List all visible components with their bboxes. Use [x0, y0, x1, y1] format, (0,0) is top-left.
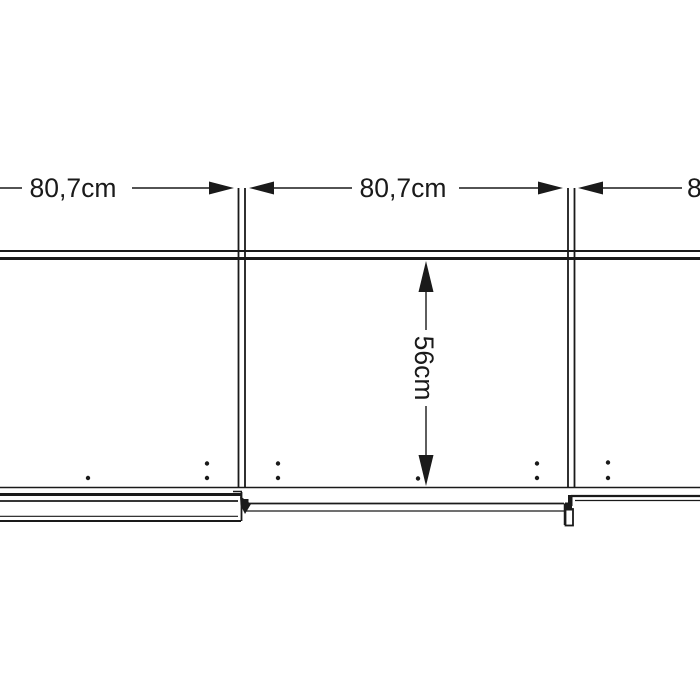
dimension-label-right-clipped: 80,7cm [687, 173, 700, 203]
width-dimension-middle: 80,7cm [249, 173, 563, 203]
sliding-door-middle [244, 499, 573, 526]
arrow-right-icon [209, 182, 234, 195]
drill-hole-dot [86, 476, 90, 480]
depth-dimension: 56cm [409, 261, 439, 486]
divider-panel-left [239, 188, 246, 487]
drill-hole-dot [205, 476, 209, 480]
drill-hole-dot [606, 476, 610, 480]
width-dimension-left: 80,7cm [0, 173, 234, 203]
drill-hole-dot [606, 460, 610, 464]
arrow-right-icon [538, 182, 563, 195]
wardrobe-plan-drawing: 80,7cm 80,7cm 80,7cm [0, 0, 700, 700]
arrow-left-icon [249, 182, 274, 195]
sliding-door-left [0, 492, 251, 522]
drill-hole-dots [86, 460, 610, 480]
door-middle-handle-cap [564, 506, 572, 511]
sliding-door-right [565, 495, 700, 506]
divider-panel-right [568, 188, 575, 487]
technical-drawing-canvas: 80,7cm 80,7cm 80,7cm [0, 0, 700, 700]
arrow-left-icon [578, 182, 603, 195]
door-right-hook-foot [565, 503, 569, 507]
drill-hole-dot [205, 461, 209, 465]
dimension-label-middle: 80,7cm [360, 173, 447, 203]
width-dimension-right: 80,7cm [578, 173, 700, 203]
drill-hole-dot [276, 461, 280, 465]
arrow-down-icon [419, 455, 434, 486]
arrow-up-icon [419, 261, 434, 292]
carcass-back-panel [0, 251, 700, 259]
dimension-label-depth: 56cm [409, 336, 439, 401]
drill-hole-dot [276, 476, 280, 480]
drill-hole-dot [535, 476, 539, 480]
drill-hole-dot [535, 461, 539, 465]
dimension-label-left: 80,7cm [30, 173, 117, 203]
drill-hole-dot [416, 476, 420, 480]
door-middle-handle-profile [566, 509, 574, 526]
